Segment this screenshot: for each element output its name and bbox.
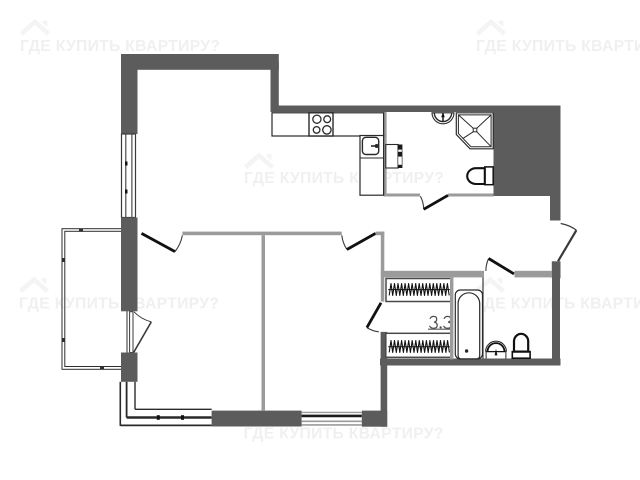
- svg-text:ГДЕ КУПИТЬ КВАРТИРУ?: ГДЕ КУПИТЬ КВАРТИРУ?: [244, 426, 444, 443]
- svg-text:ГДЕ КУПИТЬ КВАРТИРУ?: ГДЕ КУПИТЬ КВАРТИРУ?: [19, 296, 219, 313]
- svg-text:ГДЕ КУПИТЬ КВАРТИРУ?: ГДЕ КУПИТЬ КВАРТИРУ?: [20, 38, 220, 55]
- svg-text:ГДЕ КУПИТЬ КВАРТИРУ?: ГДЕ КУПИТЬ КВАРТИРУ?: [476, 38, 640, 55]
- svg-text:ГДЕ КУПИТЬ КВАРТИРУ?: ГДЕ КУПИТЬ КВАРТИРУ?: [244, 170, 444, 187]
